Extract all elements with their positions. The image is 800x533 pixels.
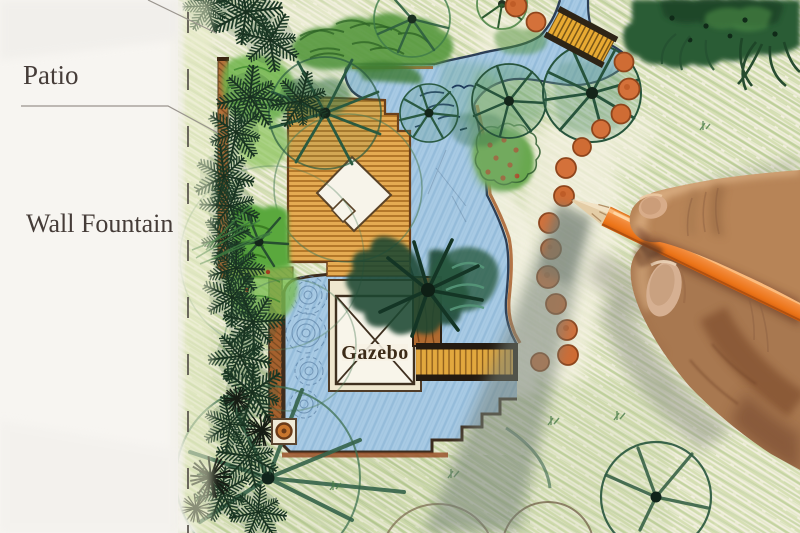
svg-text:Gazebo: Gazebo bbox=[341, 342, 408, 364]
svg-text:Wall Fountain: Wall Fountain bbox=[26, 209, 173, 238]
svg-text:Patio: Patio bbox=[23, 60, 79, 90]
